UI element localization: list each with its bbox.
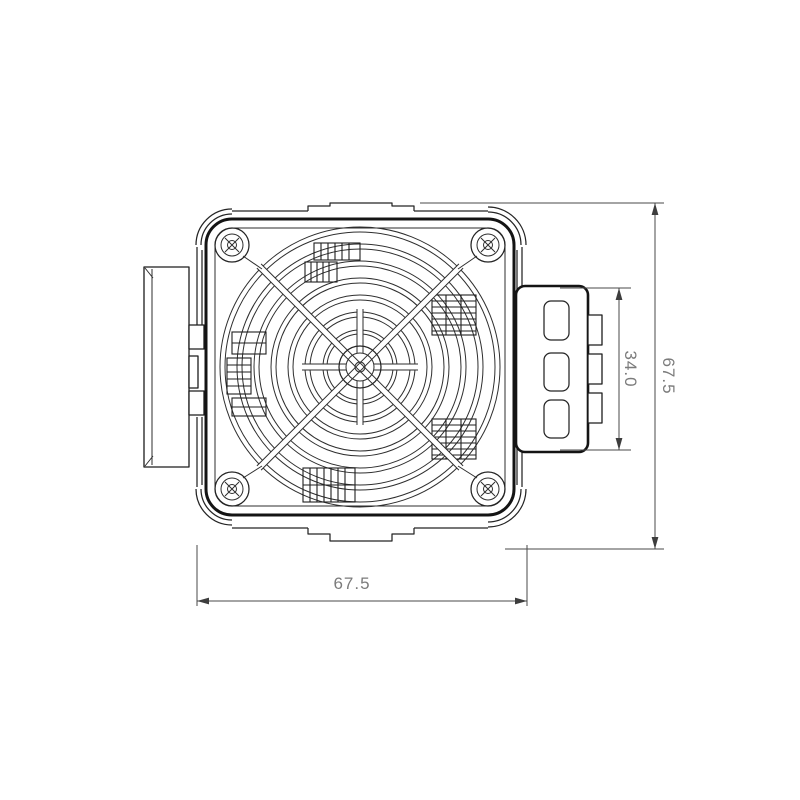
technical-drawing: 67.5 67.5 34.0 [0,0,800,800]
dimension-bottom-width: 67.5 [197,545,527,606]
dim-label-right-height: 67.5 [659,357,678,394]
drawing-canvas: 67.5 67.5 34.0 [0,0,800,800]
terminal-connector [516,286,602,452]
left-rail-clips [189,325,204,415]
screw-top-left [215,228,262,269]
dim-label-bottom-width: 67.5 [333,574,370,593]
connector-terminals [588,315,602,423]
screw-top-right [458,228,505,269]
screw-bottom-right [458,466,505,506]
screw-bottom-left [215,466,262,506]
left-mounting-flange [144,267,189,467]
dim-label-connector-height: 34.0 [621,350,640,387]
